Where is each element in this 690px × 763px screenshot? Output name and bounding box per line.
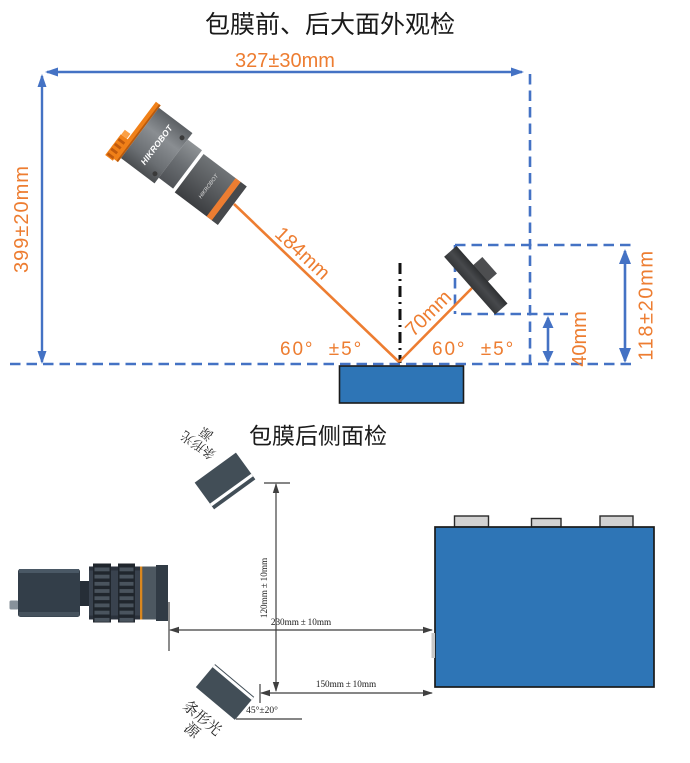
svg-text:60° ±5°: 60° ±5° bbox=[432, 339, 515, 360]
svg-text:40mm: 40mm bbox=[569, 311, 591, 367]
svg-text:399±20mm: 399±20mm bbox=[11, 165, 33, 273]
svg-text:150mm ± 10mm: 150mm ± 10mm bbox=[316, 679, 376, 689]
svg-text:45°±20°: 45°±20° bbox=[246, 705, 278, 716]
svg-text:327±30mm: 327±30mm bbox=[235, 50, 335, 72]
svg-text:230mm ± 10mm: 230mm ± 10mm bbox=[271, 617, 331, 627]
svg-text:118±20mm: 118±20mm bbox=[636, 249, 658, 360]
svg-text:60° ±5°: 60° ±5° bbox=[280, 339, 363, 360]
svg-text:120mm ± 10mm: 120mm ± 10mm bbox=[259, 558, 269, 618]
